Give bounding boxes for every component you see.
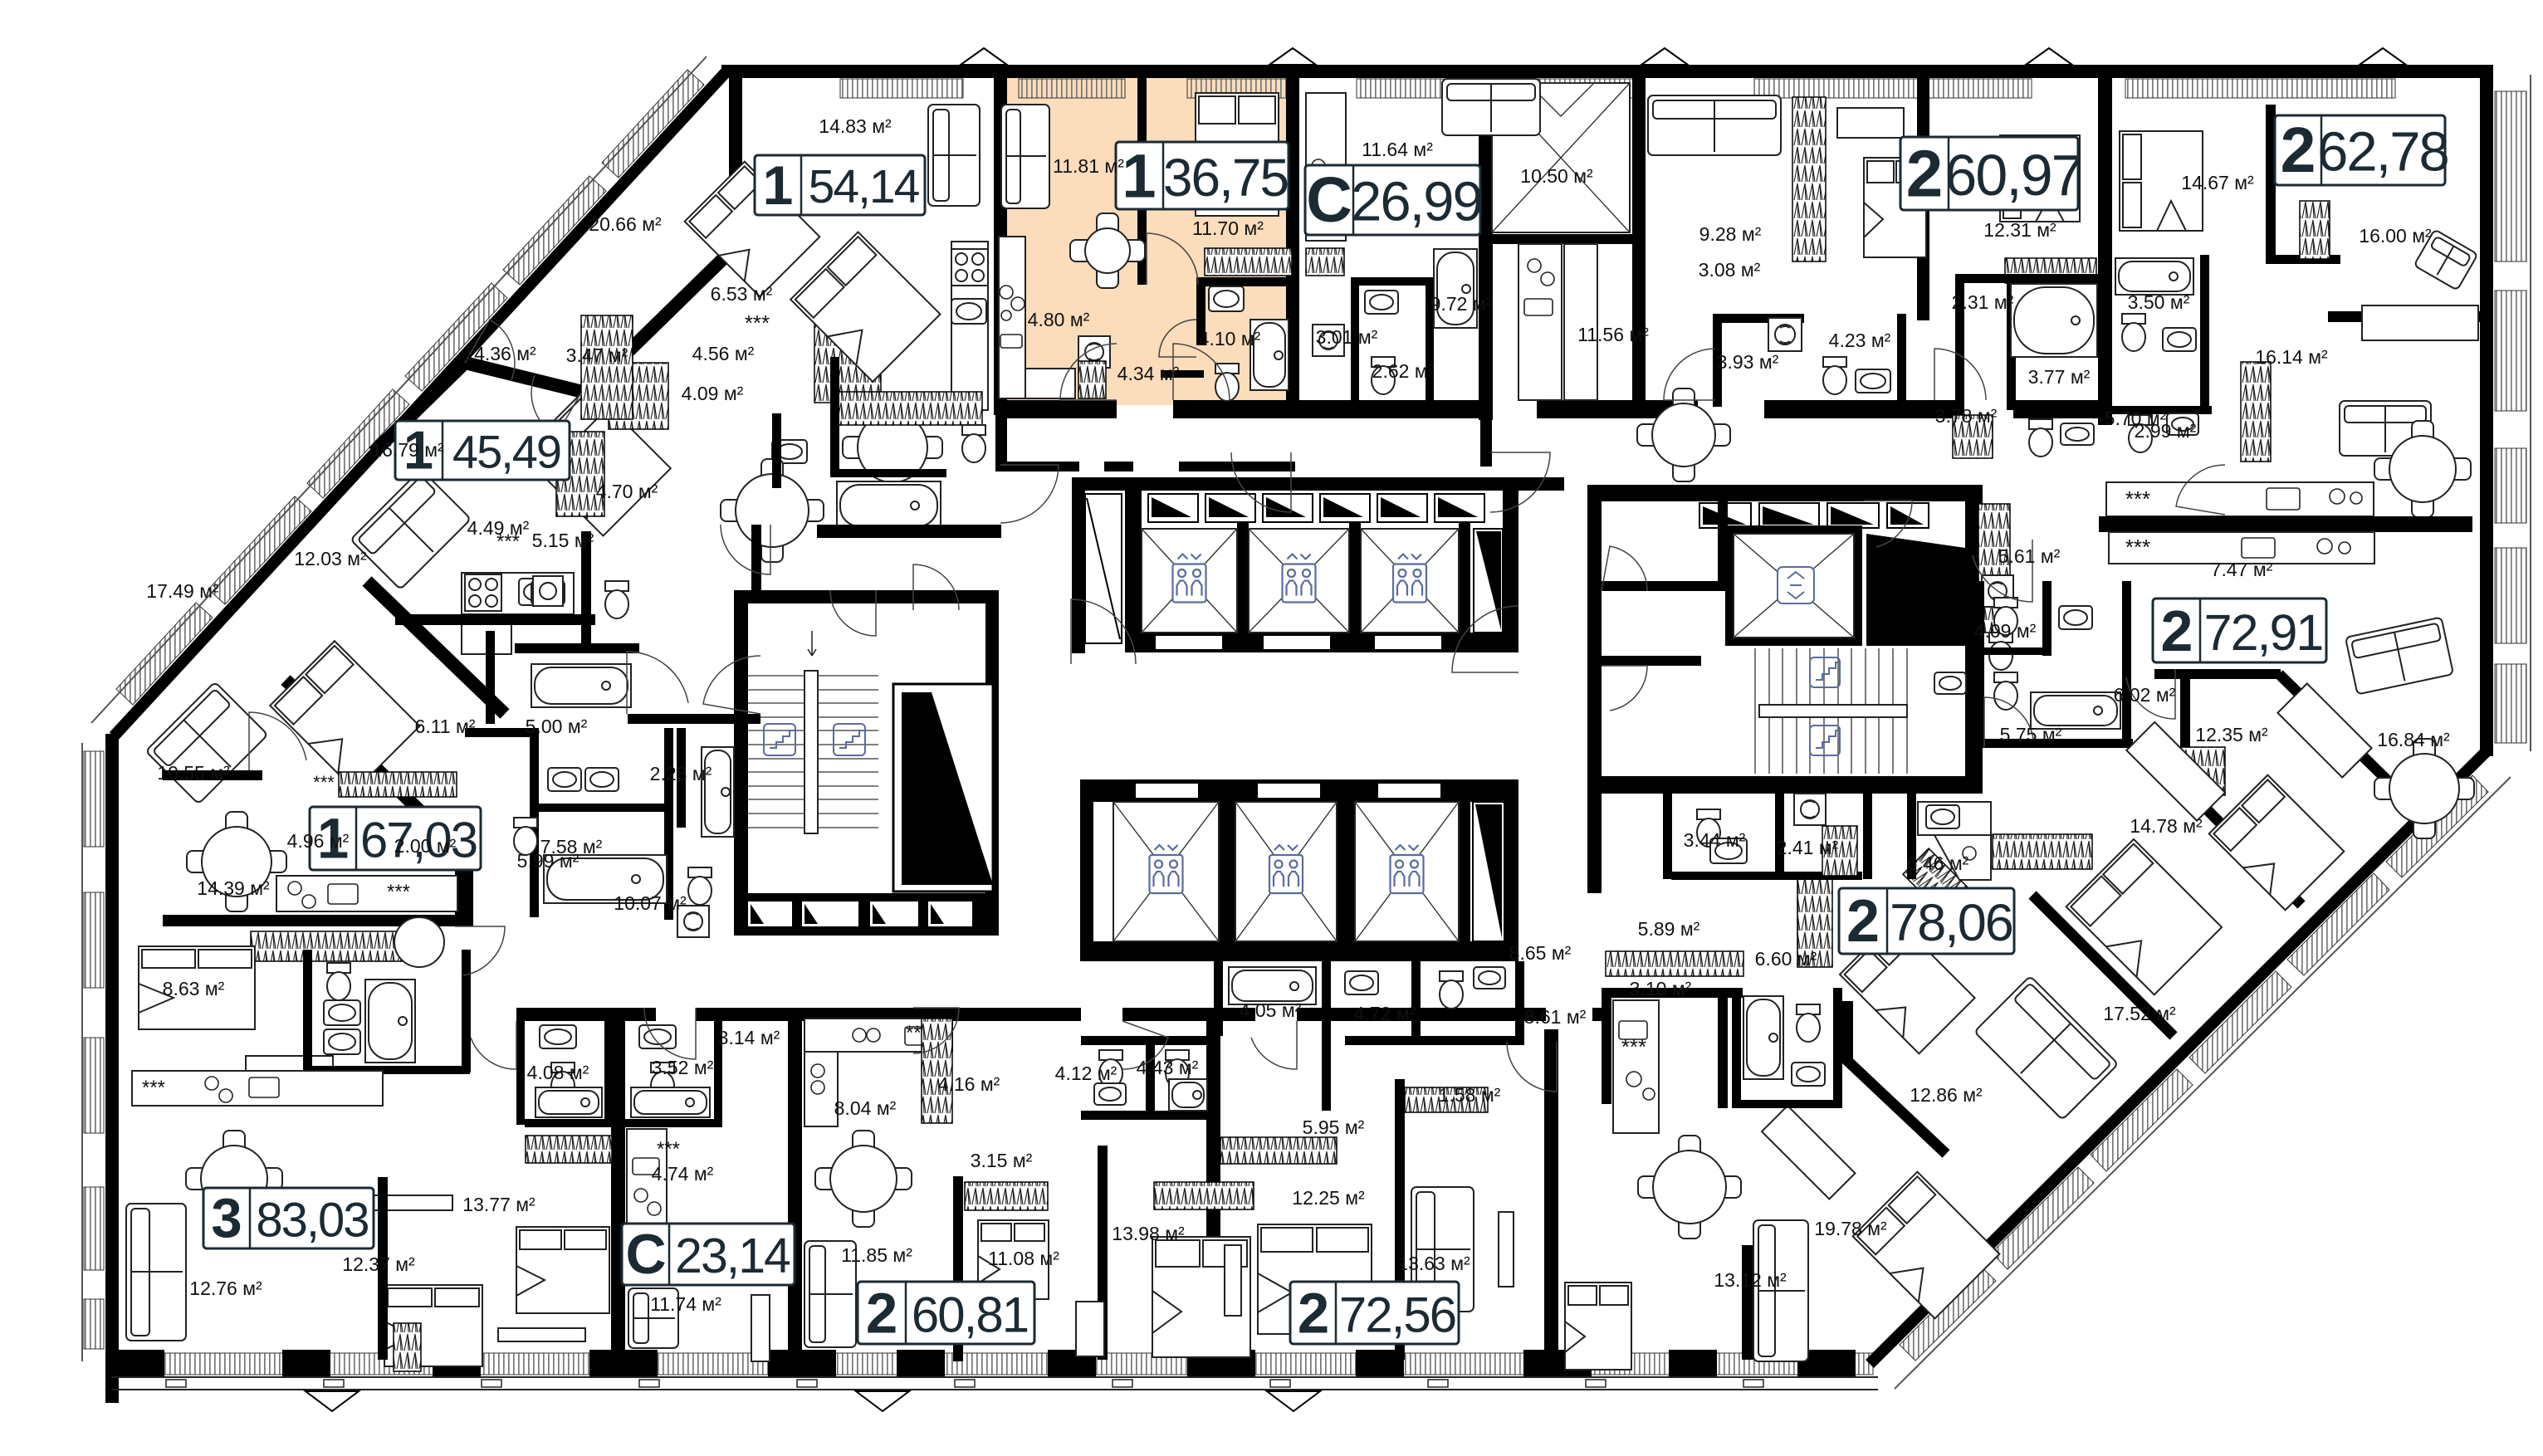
svg-text:16.84 м²: 16.84 м² bbox=[2377, 729, 2450, 750]
svg-text:14.36 м²: 14.36 м² bbox=[463, 343, 536, 364]
svg-text:11.70 м²: 11.70 м² bbox=[1192, 217, 1264, 239]
svg-text:4.43 м²: 4.43 м² bbox=[1137, 1057, 1199, 1078]
svg-text:60,81: 60,81 bbox=[912, 1287, 1028, 1343]
svg-text:***: *** bbox=[313, 772, 335, 793]
svg-text:4.96 м²: 4.96 м² bbox=[287, 830, 350, 852]
svg-text:4.05 м²: 4.05 м² bbox=[1240, 999, 1302, 1021]
svg-text:3.14 м²: 3.14 м² bbox=[718, 1027, 780, 1048]
svg-text:6.11 м²: 6.11 м² bbox=[415, 716, 476, 737]
svg-text:26,99: 26,99 bbox=[1351, 171, 1482, 233]
svg-text:4.70 м²: 4.70 м² bbox=[596, 481, 658, 502]
svg-text:12.86 м²: 12.86 м² bbox=[1910, 1084, 1983, 1106]
svg-text:3.01 м²: 3.01 м² bbox=[1316, 326, 1378, 348]
svg-text:4.09 м²: 4.09 м² bbox=[682, 383, 744, 404]
svg-text:5.61 м²: 5.61 м² bbox=[1998, 545, 2061, 567]
svg-text:11.85 м²: 11.85 м² bbox=[841, 1244, 912, 1266]
svg-text:***: *** bbox=[2125, 535, 2150, 559]
svg-text:***: *** bbox=[745, 310, 770, 335]
svg-text:***: *** bbox=[657, 1138, 680, 1160]
svg-text:3.52 м²: 3.52 м² bbox=[652, 1057, 714, 1078]
svg-text:5.00 м²: 5.00 м² bbox=[526, 716, 588, 737]
svg-text:83,03: 83,03 bbox=[256, 1194, 368, 1248]
svg-text:5.15 м²: 5.15 м² bbox=[532, 530, 594, 551]
svg-text:13.98 м²: 13.98 м² bbox=[1112, 1223, 1185, 1244]
svg-text:72,91: 72,91 bbox=[2204, 604, 2323, 661]
svg-text:23,14: 23,14 bbox=[675, 1229, 790, 1283]
svg-text:5.89 м²: 5.89 м² bbox=[1638, 918, 1700, 940]
svg-text:С: С bbox=[625, 1223, 666, 1286]
svg-text:17.52 м²: 17.52 м² bbox=[2103, 1003, 2176, 1024]
svg-text:4.74 м²: 4.74 м² bbox=[652, 1163, 714, 1185]
svg-text:4.12 м²: 4.12 м² bbox=[1055, 1063, 1117, 1084]
svg-text:11.81 м²: 11.81 м² bbox=[1053, 155, 1124, 177]
svg-text:54,14: 54,14 bbox=[809, 160, 920, 213]
svg-text:4.72 м²: 4.72 м² bbox=[1354, 1003, 1416, 1024]
svg-text:2.41 м²: 2.41 м² bbox=[1777, 837, 1839, 858]
svg-text:5.75 м²: 5.75 м² bbox=[2000, 724, 2062, 745]
svg-text:4.23 м²: 4.23 м² bbox=[1829, 330, 1891, 351]
svg-text:12.37 м²: 12.37 м² bbox=[342, 1253, 415, 1275]
svg-text:11.64 м²: 11.64 м² bbox=[1362, 139, 1433, 160]
svg-text:2: 2 bbox=[2161, 599, 2193, 663]
svg-text:1: 1 bbox=[1122, 142, 1156, 211]
svg-text:8.04 м²: 8.04 м² bbox=[834, 1097, 897, 1119]
svg-text:3.93 м²: 3.93 м² bbox=[1717, 351, 1779, 373]
svg-text:4.16 м²: 4.16 м² bbox=[938, 1073, 1000, 1095]
svg-text:4.34 м²: 4.34 м² bbox=[1117, 363, 1180, 384]
svg-text:12.76 м²: 12.76 м² bbox=[189, 1278, 262, 1299]
svg-text:13.63 м²: 13.63 м² bbox=[1397, 1253, 1470, 1274]
svg-text:5.95 м²: 5.95 м² bbox=[1303, 1116, 1365, 1138]
svg-text:60,97: 60,97 bbox=[1944, 143, 2081, 208]
svg-text:2: 2 bbox=[1906, 137, 1944, 211]
svg-text:3.08 м²: 3.08 м² bbox=[1699, 259, 1761, 281]
svg-text:14.67 м²: 14.67 м² bbox=[2181, 172, 2254, 193]
svg-text:3.15 м²: 3.15 м² bbox=[971, 1150, 1033, 1171]
svg-text:4.09 м²: 4.09 м² bbox=[1974, 620, 2037, 642]
svg-text:***: *** bbox=[1621, 1034, 1646, 1059]
svg-text:10.55 м²: 10.55 м² bbox=[157, 762, 230, 784]
svg-text:16.79 м²: 16.79 м² bbox=[371, 439, 444, 461]
svg-text:14.78 м²: 14.78 м² bbox=[2130, 815, 2203, 837]
svg-text:8.61 м²: 8.61 м² bbox=[1524, 1006, 1587, 1028]
svg-text:6.02 м²: 6.02 м² bbox=[2114, 684, 2176, 706]
svg-text:13.77 м²: 13.77 м² bbox=[462, 1194, 535, 1215]
svg-text:6.60 м²: 6.60 м² bbox=[1755, 948, 1817, 970]
svg-text:1: 1 bbox=[763, 154, 794, 216]
svg-text:5.70 м²: 5.70 м² bbox=[2105, 408, 2167, 429]
svg-text:12.35 м²: 12.35 м² bbox=[2195, 724, 2268, 745]
svg-text:19.78 м²: 19.78 м² bbox=[1814, 1218, 1887, 1239]
svg-text:72,56: 72,56 bbox=[1339, 1287, 1455, 1343]
svg-text:9.28 м²: 9.28 м² bbox=[1699, 223, 1762, 245]
svg-text:12.31 м²: 12.31 м² bbox=[1983, 219, 2056, 241]
svg-text:2.28 м²: 2.28 м² bbox=[650, 763, 712, 784]
svg-text:7.47 м²: 7.47 м² bbox=[2211, 559, 2273, 580]
svg-text:3.77 м²: 3.77 м² bbox=[2028, 366, 2091, 388]
svg-text:16.00 м²: 16.00 м² bbox=[2359, 225, 2432, 247]
svg-text:36,75: 36,75 bbox=[1163, 148, 1288, 208]
svg-text:20.66 м²: 20.66 м² bbox=[589, 213, 662, 235]
svg-text:3.50 м²: 3.50 м² bbox=[2128, 291, 2190, 313]
svg-text:9.72 м²: 9.72 м² bbox=[1430, 293, 1493, 315]
svg-text:3.44 м²: 3.44 м² bbox=[1684, 829, 1746, 851]
svg-text:4.10 м²: 4.10 м² bbox=[1199, 328, 1261, 349]
svg-text:11.08 м²: 11.08 м² bbox=[988, 1248, 1059, 1269]
svg-text:62,78: 62,78 bbox=[2317, 121, 2448, 183]
svg-text:11.56 м²: 11.56 м² bbox=[1577, 324, 1649, 345]
svg-text:6.46 м²: 6.46 м² bbox=[1907, 853, 1969, 874]
svg-text:3: 3 bbox=[211, 1188, 242, 1250]
svg-text:6.53 м²: 6.53 м² bbox=[711, 283, 773, 305]
svg-text:***: *** bbox=[2125, 486, 2150, 511]
svg-text:13.12 м²: 13.12 м² bbox=[1714, 1269, 1787, 1291]
svg-text:8.63 м²: 8.63 м² bbox=[163, 978, 225, 999]
svg-text:4.08 м²: 4.08 м² bbox=[527, 1062, 589, 1083]
svg-text:12.03 м²: 12.03 м² bbox=[294, 548, 367, 569]
svg-text:4.80 м²: 4.80 м² bbox=[1028, 309, 1090, 330]
svg-text:***: *** bbox=[387, 881, 410, 903]
svg-text:3.47 м²: 3.47 м² bbox=[566, 344, 628, 366]
svg-text:4.56 м²: 4.56 м² bbox=[692, 343, 755, 364]
svg-text:17.49 м²: 17.49 м² bbox=[146, 580, 219, 602]
svg-text:2: 2 bbox=[1298, 1282, 1329, 1346]
svg-text:14.83 м²: 14.83 м² bbox=[819, 115, 892, 137]
svg-text:1.58 м²: 1.58 м² bbox=[1439, 1084, 1501, 1106]
svg-text:12.25 м²: 12.25 м² bbox=[1292, 1187, 1365, 1209]
svg-text:3.78 м²: 3.78 м² bbox=[1935, 405, 1998, 427]
svg-text:2.31 м²: 2.31 м² bbox=[1952, 291, 2014, 313]
svg-text:2: 2 bbox=[866, 1282, 897, 1346]
svg-text:4.49 м²: 4.49 м² bbox=[467, 517, 530, 539]
svg-text:2.62 м²: 2.62 м² bbox=[1372, 360, 1435, 382]
svg-text:8.65 м²: 8.65 м² bbox=[1509, 942, 1572, 964]
svg-text:2: 2 bbox=[2281, 115, 2316, 186]
svg-text:78,06: 78,06 bbox=[1890, 894, 2012, 952]
svg-text:2: 2 bbox=[1846, 888, 1880, 955]
svg-text:5.99 м²: 5.99 м² bbox=[517, 850, 580, 872]
svg-text:***: *** bbox=[142, 1077, 165, 1099]
svg-text:11.74 м²: 11.74 м² bbox=[650, 1293, 721, 1315]
svg-text:14.39 м²: 14.39 м² bbox=[197, 877, 270, 899]
svg-text:С: С bbox=[1306, 164, 1352, 236]
svg-text:10.50 м²: 10.50 м² bbox=[1520, 165, 1593, 187]
svg-text:16.14 м²: 16.14 м² bbox=[2255, 346, 2328, 368]
svg-text:10.07 м²: 10.07 м² bbox=[614, 892, 687, 914]
svg-text:45,49: 45,49 bbox=[452, 426, 560, 478]
svg-text:2.00 м²: 2.00 м² bbox=[394, 835, 457, 857]
svg-text:3.10 м²: 3.10 м² bbox=[1630, 978, 1692, 999]
